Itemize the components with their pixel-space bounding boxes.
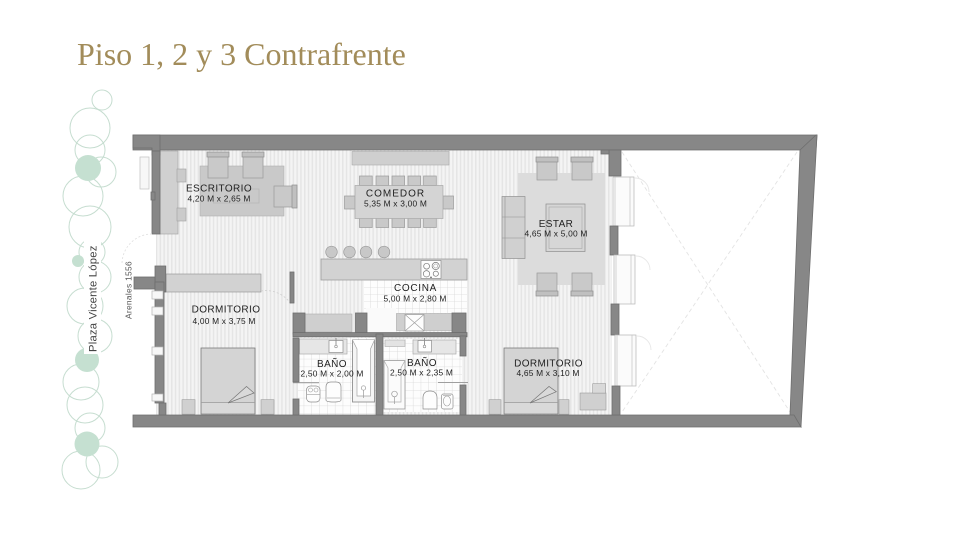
svg-text:5,00 M x 2,80 M: 5,00 M x 2,80 M	[383, 294, 446, 304]
svg-text:4,00 M x 3,75 M: 4,00 M x 3,75 M	[192, 316, 255, 326]
svg-text:Arenales 1556: Arenales 1556	[124, 261, 134, 319]
svg-text:4,65 M x 5,00 M: 4,65 M x 5,00 M	[524, 229, 587, 239]
svg-text:5,35 M x 3,00 M: 5,35 M x 3,00 M	[364, 199, 427, 209]
svg-text:4,65 M x 3,10 M: 4,65 M x 3,10 M	[516, 368, 579, 378]
svg-text:DORMITORIO: DORMITORIO	[192, 305, 261, 316]
svg-text:COCINA: COCINA	[394, 283, 437, 294]
svg-text:Plaza Vicente López: Plaza Vicente López	[88, 245, 100, 352]
svg-text:4,20 M x 2,65 M: 4,20 M x 2,65 M	[187, 194, 250, 204]
svg-text:2,50 M x 2,35 M: 2,50 M x 2,35 M	[390, 368, 453, 378]
svg-text:2,50 M x 2,00 M: 2,50 M x 2,00 M	[300, 369, 363, 379]
